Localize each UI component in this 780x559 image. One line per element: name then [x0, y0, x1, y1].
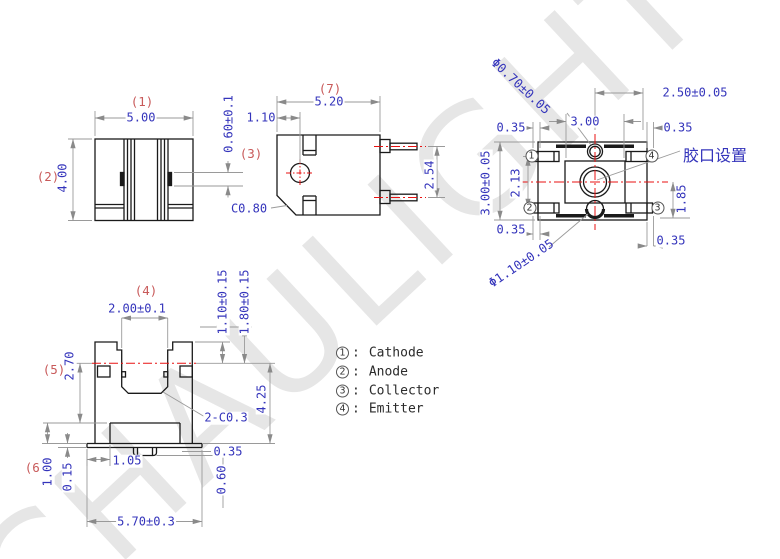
side-pin-pitch-dim: 2.54	[424, 160, 437, 191]
top-pin-row-right-dim: 1.85	[676, 184, 689, 215]
bottom-slot-chamfer-dim: 2-C0.3	[203, 412, 248, 425]
legend-item-collector: 3:Collector	[336, 383, 439, 398]
front-height-dim: 4.00	[57, 163, 70, 194]
bottom-pin-height2-dim: 1.80±0.15	[238, 268, 251, 335]
top-hole-bottom-dim: Φ1.10±0.05	[485, 236, 556, 290]
pin-marker-1: 1	[525, 149, 538, 162]
bottom-flange-thickness-dim: 0.15	[61, 461, 74, 492]
front-ref-pin: (3)	[240, 148, 263, 161]
bottom-slot-width-dim: 2.00±0.1	[107, 303, 167, 316]
side-depth-dim: 5.20	[314, 96, 345, 109]
legend-item-cathode: 1:Cathode	[336, 346, 424, 361]
legend-item-emitter: 4:Emitter	[336, 402, 424, 417]
bottom-ref-slot: (4)	[135, 285, 158, 298]
annotation-layer: (1) 5.00 (2) 4.00 0.60±0.1 (3) (7) 5.20 …	[0, 0, 780, 559]
front-ref-width: (1)	[131, 96, 154, 109]
bottom-base-height-dim: 1.00	[41, 456, 54, 487]
top-pad-top-right-dim: 0.35	[663, 122, 694, 135]
side-chamfer-dim: C0.80	[230, 203, 268, 216]
top-pad-top-left-dim: 0.35	[496, 122, 527, 135]
top-center-to-edge-dim: 2.50±0.05	[661, 87, 728, 100]
top-pin-row-left-dim: 2.13	[510, 168, 523, 199]
pin-marker-3: 3	[651, 201, 664, 214]
side-ref-depth: (7)	[319, 83, 342, 96]
drawing-sheet: CHAULIGHT	[0, 0, 780, 559]
bottom-upper-height-dim: 2.70	[64, 351, 77, 382]
front-width-dim: 5.00	[126, 112, 157, 125]
bottom-tab-offset-dim: 0.35	[213, 445, 244, 458]
top-body-height-dim: 3.00±0.05	[480, 149, 493, 216]
bottom-foot-width-dim: 1.05	[112, 455, 143, 468]
top-core-width-dim: 3.00	[570, 115, 601, 128]
bottom-base-width-dim: 5.70±0.3	[116, 515, 176, 528]
top-pad-bottom-right-dim: 0.35	[656, 235, 687, 248]
legend-item-anode: 2:Anode	[336, 365, 408, 380]
bottom-total-height-dim: 4.25	[256, 384, 269, 415]
top-pad-bottom-left-dim: 0.35	[496, 224, 527, 237]
side-hole-offset-dim: 1.10	[246, 112, 277, 125]
top-gate-note: 胶口设置	[683, 148, 747, 164]
pin-marker-4: 4	[645, 149, 658, 162]
bottom-pin-height1-dim: 1.10±0.15	[216, 268, 229, 335]
pin-marker-2: 2	[523, 201, 536, 214]
front-pin-thickness-dim: 0.60±0.1	[223, 94, 236, 154]
top-hole-top-dim: Φ0.70±0.05	[488, 55, 553, 117]
bottom-tab-height-dim: 0.60	[215, 465, 228, 496]
